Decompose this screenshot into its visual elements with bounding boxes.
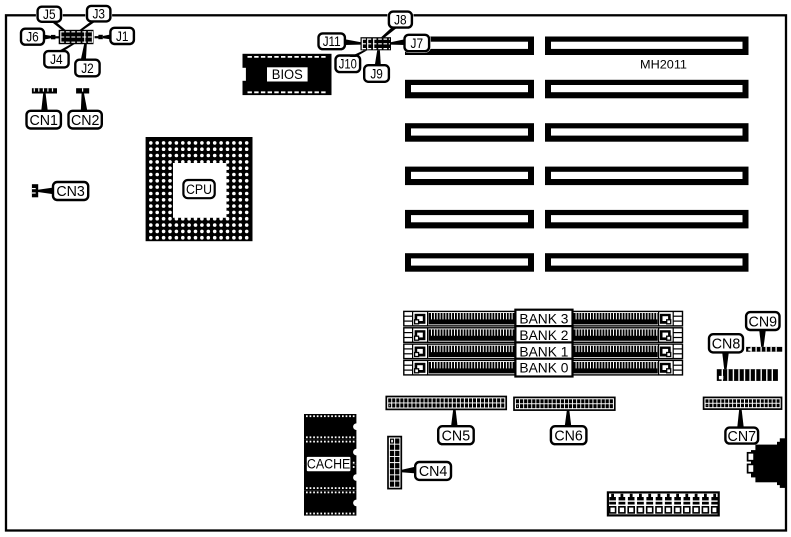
svg-text:MH2011: MH2011	[640, 60, 687, 72]
svg-text:CN8: CN8	[712, 337, 741, 353]
svg-text:J10: J10	[339, 57, 357, 72]
svg-text:CN2: CN2	[71, 113, 100, 129]
svg-text:J9: J9	[370, 66, 383, 81]
svg-text:BANK 0: BANK 0	[519, 360, 568, 376]
svg-text:CN7: CN7	[728, 429, 757, 445]
svg-text:CN1: CN1	[29, 113, 58, 129]
svg-text:J11: J11	[323, 34, 341, 49]
svg-text:J4: J4	[50, 52, 63, 67]
svg-text:J8: J8	[394, 13, 407, 28]
svg-text:J6: J6	[26, 30, 39, 45]
svg-text:CN4: CN4	[419, 464, 448, 480]
svg-text:BIOS: BIOS	[272, 67, 303, 82]
svg-text:J3: J3	[92, 7, 105, 22]
svg-text:CN3: CN3	[56, 184, 85, 200]
svg-text:J5: J5	[43, 7, 56, 22]
svg-text:BANK 3: BANK 3	[519, 311, 568, 327]
svg-text:J7: J7	[411, 36, 424, 51]
svg-text:CN6: CN6	[554, 428, 583, 444]
svg-text:J2: J2	[81, 61, 94, 76]
svg-text:CPU: CPU	[186, 182, 212, 197]
svg-text:BANK 2: BANK 2	[519, 327, 568, 343]
svg-text:BANK 1: BANK 1	[519, 343, 568, 359]
svg-text:J1: J1	[116, 29, 129, 44]
svg-text:CN5: CN5	[442, 428, 471, 444]
svg-text:CN9: CN9	[749, 314, 778, 330]
svg-text:CACHE: CACHE	[307, 457, 351, 472]
